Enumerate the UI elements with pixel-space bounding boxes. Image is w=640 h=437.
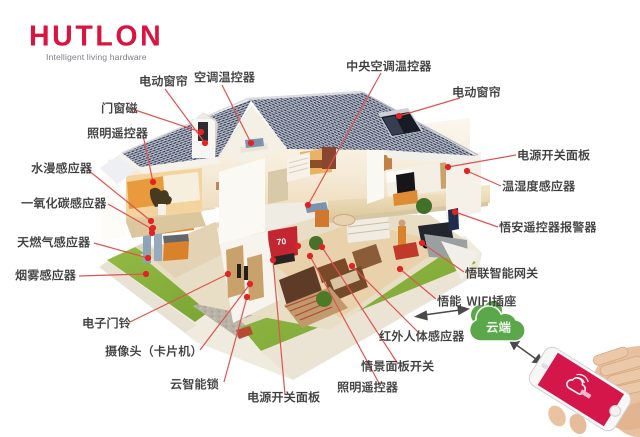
svg-text:70: 70	[276, 236, 287, 247]
svg-text:HUTLON: HUTLON	[29, 21, 163, 53]
svg-text:Intelligent living hardware: Intelligent living hardware	[46, 52, 147, 62]
